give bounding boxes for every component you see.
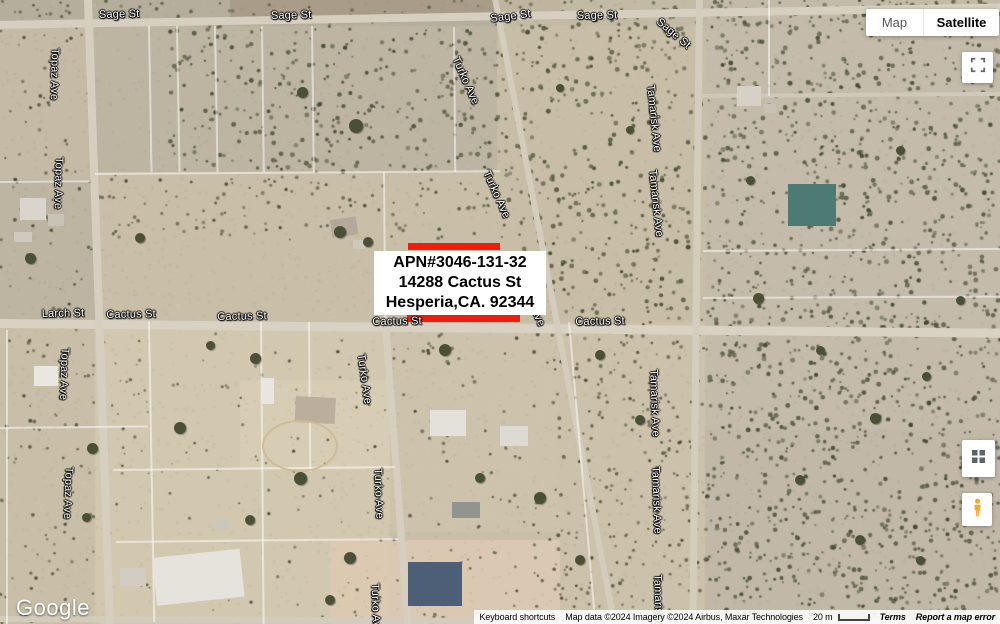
building [764, 104, 776, 113]
tree [82, 513, 91, 522]
tree [297, 87, 308, 98]
apn-number: APN#3046-131-32 [393, 253, 526, 273]
parcel-line [703, 248, 1000, 252]
parcel-highlight [407, 315, 520, 322]
tree [635, 415, 645, 425]
parcel-line [262, 26, 265, 172]
tree [250, 353, 261, 364]
street-label: Tamarisk Ave [649, 466, 663, 534]
keyboard-shortcuts-link[interactable]: Keyboard shortcuts [474, 610, 560, 624]
building [216, 520, 230, 530]
parcel-line [177, 26, 181, 172]
tree [363, 237, 373, 247]
tiles-button[interactable] [962, 440, 995, 477]
tree [626, 126, 634, 134]
building [20, 198, 46, 220]
terms-link[interactable]: Terms [875, 610, 911, 624]
tree [816, 346, 825, 355]
tree [534, 492, 546, 504]
tree [294, 472, 307, 485]
parcel-line [0, 180, 90, 182]
map-button[interactable]: Map [866, 9, 923, 36]
tree [174, 422, 186, 434]
tree [87, 443, 98, 454]
parcel-line [116, 538, 398, 542]
road [382, 322, 411, 624]
parcel-line [769, 0, 771, 96]
grid-icon [971, 449, 986, 469]
street-label: Cactus St [106, 308, 156, 321]
tree [439, 344, 451, 356]
street-label: Turko Ave [372, 468, 386, 519]
street-label: Cactus St [575, 315, 625, 328]
map-data-attribution: Map data ©2024 Imagery ©2024 Airbus, Max… [560, 610, 808, 624]
street-label: Topaz Ave [57, 348, 71, 401]
tree [325, 595, 335, 605]
tree [556, 84, 564, 92]
building [152, 549, 245, 606]
tree [245, 515, 255, 525]
street-label: Sage St [99, 8, 140, 21]
parcel-line [0, 425, 148, 428]
street-label: Sage St [654, 16, 693, 51]
tree [334, 226, 346, 238]
arena [262, 420, 338, 472]
building [262, 378, 274, 404]
attribution-bar: Keyboard shortcuts Map data ©2024 Imager… [474, 610, 1000, 624]
tree [922, 372, 931, 381]
fullscreen-icon [970, 57, 986, 78]
parcel-line [7, 330, 9, 624]
parcel-line [95, 170, 500, 174]
building [408, 562, 462, 606]
google-logo[interactable]: Google [16, 595, 90, 621]
street-label: Cactus St [217, 310, 267, 323]
fullscreen-button[interactable] [962, 52, 993, 83]
tree [753, 293, 764, 304]
building [34, 366, 58, 386]
satellite-button[interactable]: Satellite [923, 9, 999, 36]
tree [795, 475, 805, 485]
street-label: Turko Ave [369, 583, 383, 624]
tree [206, 341, 215, 350]
parcel-highlight [408, 243, 500, 250]
parcel-line [261, 322, 265, 624]
street-label: Sage St [271, 9, 312, 22]
parcel-line [149, 26, 153, 172]
street-label: Turko Ave [481, 169, 513, 220]
tree [575, 555, 585, 565]
scale-text: 20 m [813, 612, 833, 622]
building [120, 568, 146, 586]
property-city: Hesperia,CA. 92344 [386, 293, 535, 313]
property-annotation: APN#3046-131-32 14288 Cactus St Hesperia… [374, 251, 546, 315]
parcel-line [215, 26, 219, 172]
building [500, 426, 528, 446]
tree [916, 556, 925, 565]
street-view-pegman-icon [970, 497, 985, 523]
tree [896, 146, 905, 155]
street-label: Turko Ave [355, 353, 374, 405]
tree [25, 253, 36, 264]
tree [595, 350, 605, 360]
building [452, 502, 480, 518]
tree [475, 473, 485, 483]
street-label: Tamarisk Ave [644, 84, 663, 153]
building [737, 86, 761, 106]
report-map-error-link[interactable]: Report a map error [911, 610, 1000, 624]
street-label: Cactus St [372, 315, 422, 328]
property-address: 14288 Cactus St [399, 273, 522, 293]
parcel-line [569, 322, 597, 623]
tree [746, 176, 755, 185]
pegman-button[interactable] [962, 493, 992, 526]
tree [349, 119, 363, 133]
building [788, 184, 836, 226]
tree [855, 535, 865, 545]
parcel-line [312, 26, 315, 172]
street-label: Topaz Ave [48, 48, 61, 101]
satellite-map[interactable]: Sage StSage StSage StSage StSage StTopaz… [0, 0, 1000, 624]
scale-control: 20 m [808, 610, 875, 624]
parcel-line [454, 27, 457, 172]
tree [870, 413, 881, 424]
scale-bar [838, 614, 870, 621]
street-label: Sage St [577, 9, 618, 22]
street-label: Topaz Ave [61, 467, 75, 520]
street-label: Larch St [42, 307, 85, 320]
map-type-control: Map Satellite [866, 9, 999, 36]
tree [344, 552, 356, 564]
tree [956, 296, 965, 305]
building [14, 232, 32, 242]
building [430, 410, 466, 436]
street-label: Topaz Ave [52, 157, 65, 210]
street-label: Tamarisk Ave [647, 369, 661, 437]
tree [135, 233, 145, 243]
parcel-line [113, 466, 395, 470]
building [48, 214, 64, 226]
street-label: Tamarisk Ave [646, 169, 665, 238]
